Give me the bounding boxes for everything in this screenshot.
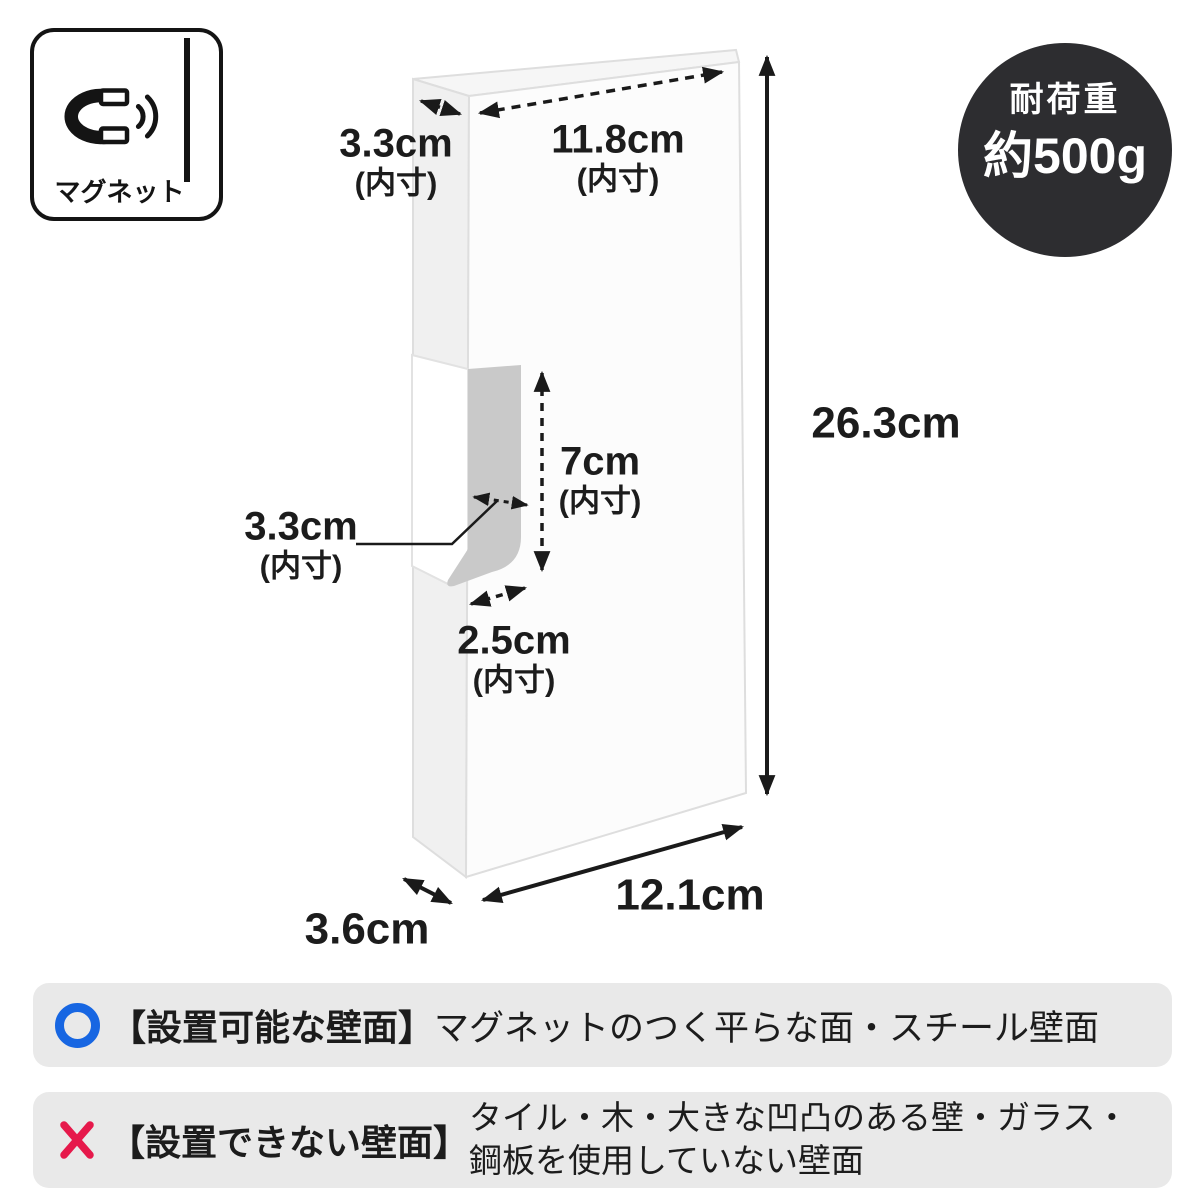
mountable-walls-bar: 【設置可能な壁面】 マグネットのつく平らな面・スチール壁面 <box>33 983 1172 1067</box>
dim-note: (内寸) <box>244 550 357 582</box>
dim-value: 7cm <box>559 441 642 482</box>
magnet-badge-label: マグネット <box>34 172 205 209</box>
mountable-walls-heading: 【設置可能な壁面】 <box>110 999 434 1051</box>
dim-value: 3.3cm <box>339 123 452 164</box>
dim-value: 26.3cm <box>811 402 960 447</box>
dim-value: 3.3cm <box>244 506 357 547</box>
non-mountable-walls-bar: 【設置できない壁面】 タイル・木・大きな凹凸のある壁・ガラス・ 鋼板を使用してい… <box>33 1092 1172 1188</box>
dim-label-top-depth: 3.3cm (内寸) <box>339 123 452 198</box>
dim-label-bottom-depth: 3.6cm <box>305 908 430 953</box>
non-mountable-walls-heading: 【設置できない壁面】 <box>109 1114 469 1166</box>
dim-value: 11.8cm <box>551 119 684 160</box>
magnet-feature-badge: マグネット <box>30 28 223 221</box>
load-capacity-badge: 耐荷重 約500g <box>958 43 1172 257</box>
dim-note: (内寸) <box>339 167 452 199</box>
dim-note: (内寸) <box>551 163 684 195</box>
dim-label-slot-width: 2.5cm (内寸) <box>457 620 570 695</box>
non-mountable-walls-text: タイル・木・大きな凹凸のある壁・ガラス・ 鋼板を使用していない壁面 <box>469 1097 1128 1183</box>
non-mountable-line2: 鋼板を使用していない壁面 <box>469 1140 1128 1183</box>
mountable-walls-text: マグネットのつく平らな面・スチール壁面 <box>434 1000 1099 1051</box>
dim-label-height: 26.3cm <box>811 402 960 447</box>
dim-label-slot-height: 7cm (内寸) <box>559 441 642 516</box>
bottom-depth-arrow <box>404 879 451 903</box>
notch-opening <box>412 355 468 585</box>
dim-label-top-width: 11.8cm (内寸) <box>551 119 684 194</box>
product-dimension-infographic: 3.3cm (内寸) 11.8cm (内寸) 26.3cm 7cm (内寸) 3… <box>0 0 1200 1200</box>
circle-ok-icon <box>55 1003 100 1048</box>
dim-value: 3.6cm <box>305 908 430 953</box>
dim-label-slot-depth: 3.3cm (内寸) <box>244 506 357 581</box>
dim-note: (内寸) <box>457 664 570 696</box>
dim-label-bottom-width: 12.1cm <box>615 874 764 919</box>
dim-value: 2.5cm <box>457 620 570 661</box>
cross-ng-icon <box>55 1118 99 1162</box>
dim-value: 12.1cm <box>615 874 764 919</box>
dim-note: (内寸) <box>559 485 642 517</box>
load-capacity-value: 約500g <box>983 126 1147 186</box>
load-capacity-title: 耐荷重 <box>1010 80 1121 121</box>
non-mountable-line1: タイル・木・大きな凹凸のある壁・ガラス・ <box>469 1097 1128 1140</box>
